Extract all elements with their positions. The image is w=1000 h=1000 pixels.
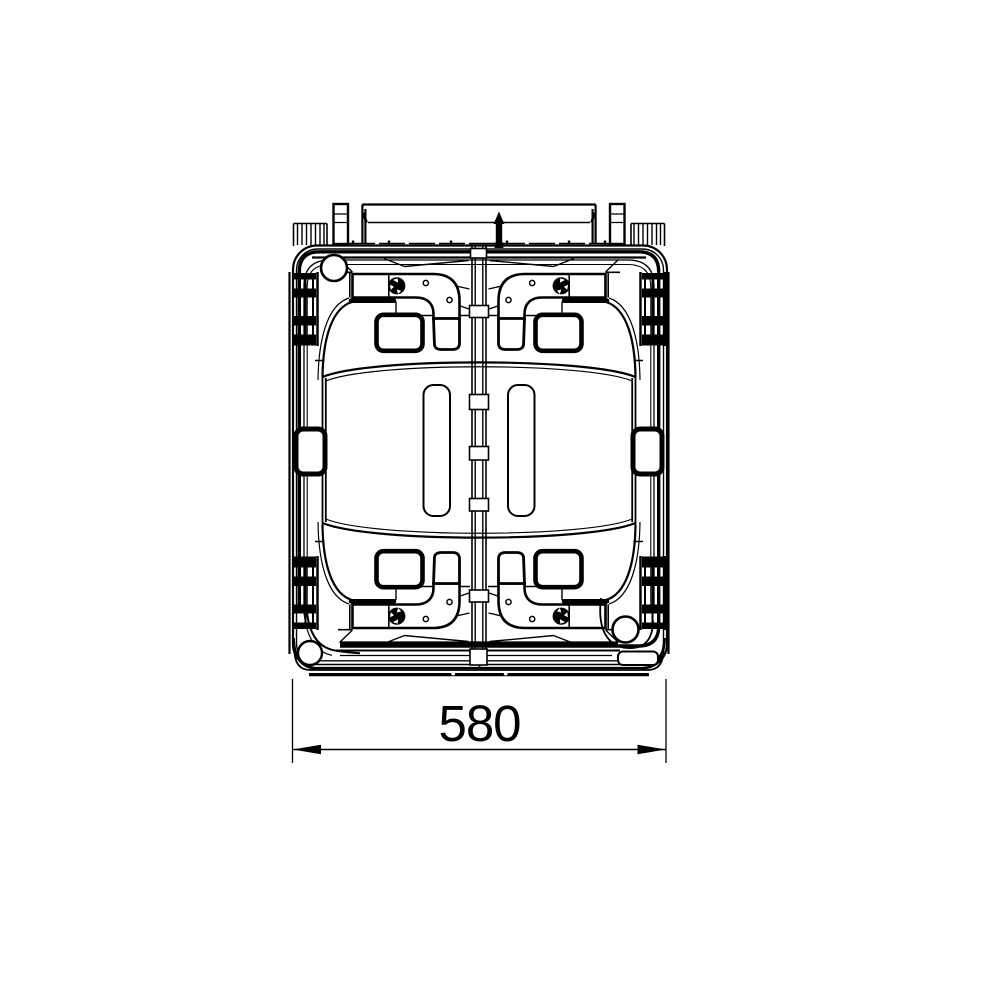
svg-text:580: 580	[438, 695, 520, 752]
